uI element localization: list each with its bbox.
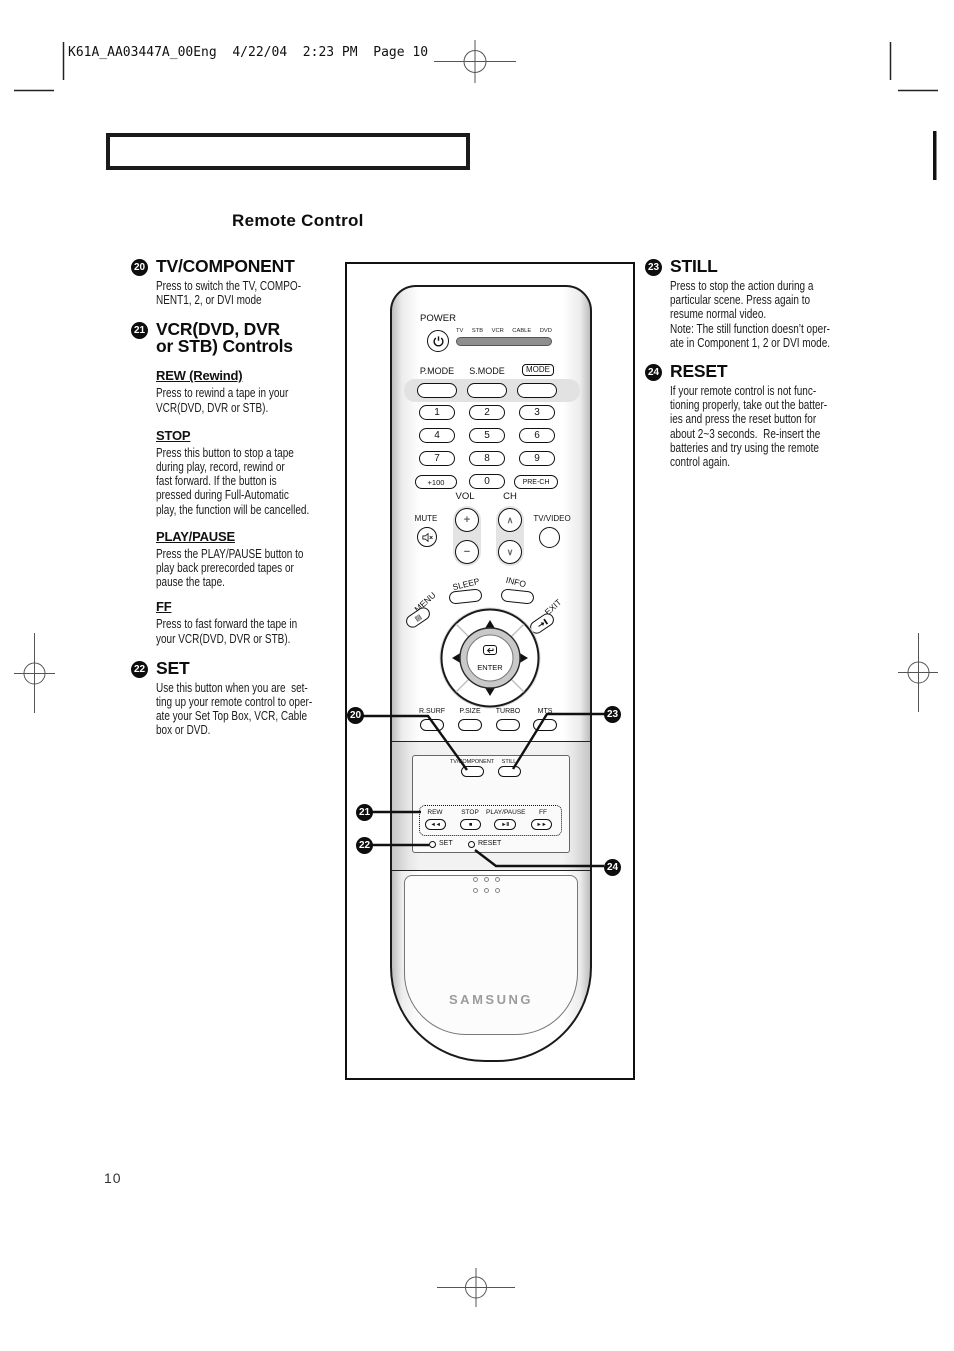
edge-mark <box>933 131 937 180</box>
samsung-logo: SAMSUNG <box>392 992 590 1007</box>
cover-dot <box>473 888 478 893</box>
info-label: INFO <box>498 573 533 591</box>
chapter-title-box <box>106 133 470 170</box>
tvvideo-label: TV/VIDEO <box>528 514 576 524</box>
mode-label: MODE <box>518 364 558 376</box>
playpause-button: ►II <box>494 819 516 830</box>
digit-4-button: 4 <box>419 428 455 443</box>
digit-3-button: 3 <box>519 405 555 420</box>
item-20-heading: 20 TV/COMPONENT <box>131 258 356 276</box>
rsurf-label: R.SURF <box>416 707 448 717</box>
cover-dot <box>473 877 478 882</box>
enter-button <box>467 635 513 681</box>
digit-6-button: 6 <box>519 428 555 443</box>
callout-number-badge: 21 <box>131 322 148 339</box>
left-column: 20 TV/COMPONENT Press to switch the TV, … <box>131 258 356 738</box>
item-22-body: Use this button when you are set- ting u… <box>156 681 316 738</box>
item-23-title: STILL <box>670 258 718 275</box>
ff-label: FF <box>535 808 551 818</box>
mts-label: MTS <box>531 707 559 717</box>
ch-down-button: ∨ <box>498 540 522 564</box>
plus100-button: +100 <box>415 475 457 489</box>
stop-label: STOP <box>458 808 482 818</box>
print-header: K61A_AA03447A_00Eng 4/22/04 2:23 PM Page… <box>68 45 428 60</box>
stop-body: Press this button to stop a tape during … <box>156 446 316 517</box>
cover-dot <box>484 877 489 882</box>
psize-button <box>458 719 482 731</box>
callout-number-badge: 24 <box>645 364 662 381</box>
digit-7-button: 7 <box>419 451 455 466</box>
item-20-body: Press to switch the TV, COMPO- NENT1, 2,… <box>156 279 316 307</box>
menu-button: ▤ <box>404 605 433 630</box>
dpad: ENTER <box>439 607 541 709</box>
pmode-button <box>417 383 457 398</box>
registration-mark-bottom <box>437 1268 515 1307</box>
digit-1-button: 1 <box>419 405 455 420</box>
cover-dot <box>495 888 500 893</box>
item-24-heading: 24 RESET <box>645 363 870 381</box>
item-24-title: RESET <box>670 363 727 380</box>
ff-sub-label: FF <box>156 599 356 614</box>
playpause-body: Press the PLAY/PAUSE button to play back… <box>156 547 316 590</box>
vol-down-button: − <box>455 540 479 564</box>
figure-callout-22: 22 <box>356 837 373 854</box>
remote-illustration-box: POWER TV STB VCR CABLE DVD P.MODE S.MODE… <box>345 262 635 1080</box>
cover-dot <box>495 877 500 882</box>
info-button <box>500 588 534 604</box>
right-column: 23 STILL Press to stop the action during… <box>645 258 870 469</box>
ch-up-button: ∧ <box>498 508 522 532</box>
mode-indicator-strip <box>456 337 552 346</box>
playpause-sub-label: PLAY/PAUSE <box>156 529 356 544</box>
rsurf-button <box>420 719 444 731</box>
battery-cover <box>404 875 578 1035</box>
stop-button: ■ <box>460 819 481 830</box>
tvcomponent-button <box>461 766 484 777</box>
set-button <box>429 841 436 848</box>
power-label: POWER <box>417 314 459 324</box>
vol-label: VOL <box>450 492 480 502</box>
mute-button <box>417 527 437 547</box>
digit-9-button: 9 <box>519 451 555 466</box>
turbo-label: TURBO <box>491 707 525 717</box>
digit-5-button: 5 <box>469 428 505 443</box>
menu-icon: ▤ <box>413 612 423 622</box>
figure-callout-21: 21 <box>356 804 373 821</box>
enter-label: ENTER <box>477 663 503 672</box>
vol-up-button: + <box>455 508 479 532</box>
device-label-cable: CABLE <box>512 328 531 334</box>
digit-2-button: 2 <box>469 405 505 420</box>
mute-label: MUTE <box>406 514 446 524</box>
device-label-stb: STB <box>472 328 483 334</box>
reset-button <box>468 841 475 848</box>
prech-button: PRE-CH <box>514 475 558 489</box>
cover-dot <box>484 888 489 893</box>
device-label-dvd: DVD <box>540 328 552 334</box>
callout-number-badge: 20 <box>131 259 148 276</box>
device-mode-labels: TV STB VCR CABLE DVD <box>456 328 552 334</box>
item-23-body: Press to stop the action during a partic… <box>670 279 830 350</box>
ff-button: ►► <box>531 819 552 830</box>
device-label-vcr: VCR <box>492 328 504 334</box>
set-label: SET <box>439 839 459 849</box>
reset-label: RESET <box>478 839 508 849</box>
item-24-body: If your remote control is not func- tion… <box>670 384 830 469</box>
callout-number-badge: 22 <box>131 661 148 678</box>
registration-mark-right <box>898 633 938 712</box>
psize-label: P.SIZE <box>453 707 487 717</box>
page-title: Remote Control <box>232 211 364 231</box>
ch-label: CH <box>492 492 528 502</box>
rew-body: Press to rewind a tape in your VCR(DVD, … <box>156 386 316 414</box>
rew-label: REW <box>423 808 447 818</box>
item-22-title: SET <box>156 660 189 677</box>
sleep-button <box>448 588 482 604</box>
mode-label-text: MODE <box>522 364 554 376</box>
registration-mark-top <box>434 40 516 83</box>
page-number: 10 <box>104 1170 122 1186</box>
pmode-label: P.MODE <box>412 366 462 376</box>
remote-control-illustration: POWER TV STB VCR CABLE DVD P.MODE S.MODE… <box>390 285 592 1062</box>
item-23-heading: 23 STILL <box>645 258 870 276</box>
mute-icon <box>421 531 434 544</box>
figure-callout-23: 23 <box>604 706 621 723</box>
turbo-button <box>496 719 520 731</box>
figure-callout-20: 20 <box>347 707 364 724</box>
item-21-title: VCR(DVD, DVR or STB) Controls <box>156 321 293 355</box>
still-button <box>498 766 521 777</box>
smode-button <box>467 383 507 398</box>
device-label-tv: TV <box>456 328 463 334</box>
stop-sub-label: STOP <box>156 428 356 443</box>
smode-label: S.MODE <box>462 366 512 376</box>
rew-sub-label: REW (Rewind) <box>156 368 356 383</box>
item-20-title: TV/COMPONENT <box>156 258 295 275</box>
rew-button: ◄◄ <box>425 819 446 830</box>
power-icon <box>432 335 445 348</box>
playpause-label: PLAY/PAUSE <box>486 808 524 818</box>
callout-number-badge: 23 <box>645 259 662 276</box>
power-button <box>427 330 449 352</box>
ff-body: Press to fast forward the tape in your V… <box>156 617 316 645</box>
registration-mark-left <box>14 633 55 713</box>
item-22-heading: 22 SET <box>131 660 356 678</box>
figure-callout-24: 24 <box>604 859 621 876</box>
manual-page: { "page": { "header_text": "K61A_AA03447… <box>0 0 954 1351</box>
volume-rocker: + − <box>453 506 481 566</box>
item-21-heading: 21 VCR(DVD, DVR or STB) Controls <box>131 321 356 355</box>
digit-0-button: 0 <box>469 474 505 489</box>
tvvideo-button <box>539 527 560 548</box>
mode-button <box>517 383 557 398</box>
channel-rocker: ∧ ∨ <box>496 506 524 566</box>
digit-8-button: 8 <box>469 451 505 466</box>
mts-button <box>533 719 557 731</box>
